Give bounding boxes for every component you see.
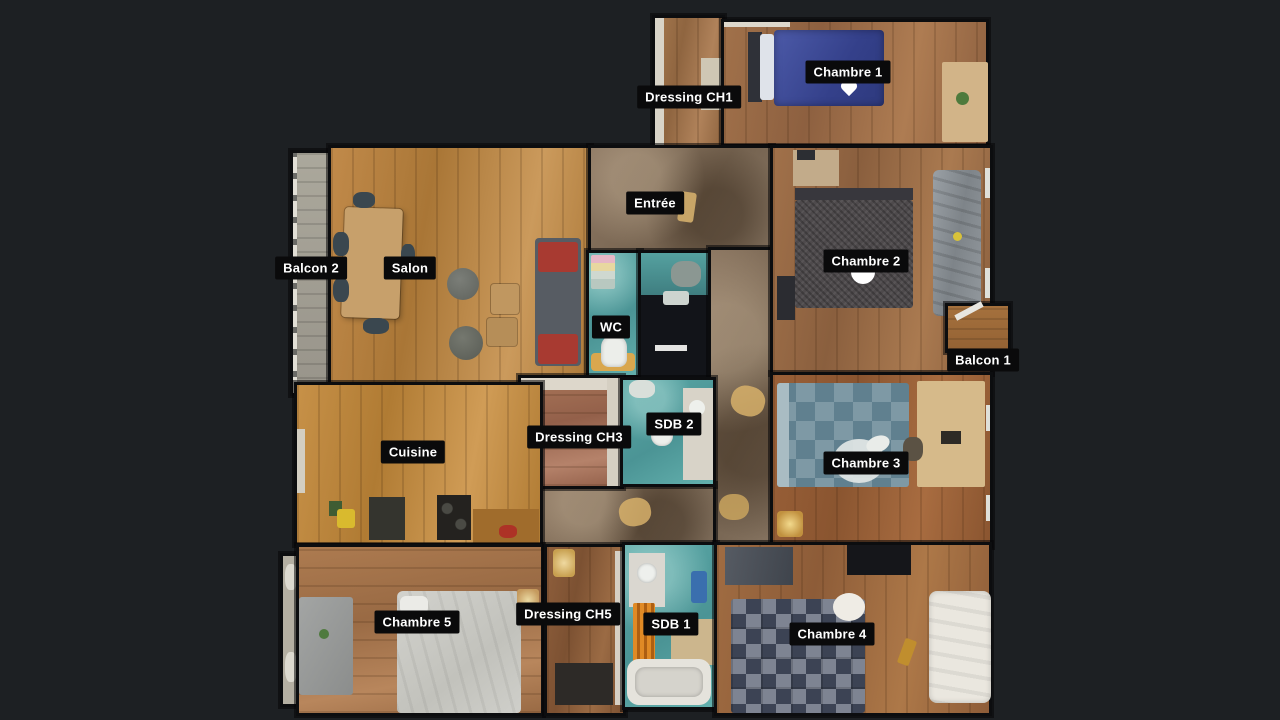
room-label-chambre-3: Chambre 3	[824, 452, 909, 475]
chambre-3-pillow-strip	[777, 383, 789, 487]
room-label-sdb-2: SDB 2	[646, 413, 701, 436]
sdb-1-towel-blue	[691, 571, 707, 603]
room-label-dressing-ch1: Dressing CH1	[637, 86, 741, 109]
salon-stool	[449, 326, 483, 360]
room-label-chambre-5: Chambre 5	[375, 611, 460, 634]
chambre-1-wall-tick	[724, 22, 790, 27]
chambre-1-pillow	[760, 34, 774, 100]
salon-stool	[447, 268, 479, 300]
chambre-3-window-tick	[986, 495, 990, 521]
room-label-salon: Salon	[384, 257, 436, 280]
room-label-chambre-2: Chambre 2	[824, 250, 909, 273]
chambre-2-dresser-item	[797, 150, 815, 160]
salon-chair	[353, 192, 375, 208]
hallway-mat	[617, 495, 653, 528]
room-balcon-1[interactable]	[948, 306, 1008, 350]
room-label-chambre-1: Chambre 1	[806, 61, 891, 84]
chambre-3-window-tick	[986, 405, 990, 431]
sdb-1-bathtub-basin	[635, 667, 703, 697]
cuisine-window	[297, 429, 305, 493]
salon-sofa-cushion-red	[538, 334, 578, 364]
room-label-wc: WC	[592, 316, 630, 339]
bathroom-gray-fixture	[671, 261, 701, 287]
room-bathroom-unscanned[interactable]	[641, 253, 713, 377]
chambre-2-yellow-item	[953, 232, 962, 241]
room-label-entree: Entrée	[626, 192, 684, 215]
salon-chair	[363, 318, 389, 334]
view-marker-heart-icon	[840, 82, 858, 98]
cuisine-red-pot	[499, 525, 517, 538]
bathroom-towel-bar	[655, 345, 687, 351]
wc-towel-shelf	[591, 255, 615, 289]
chambre-2-headboard	[795, 188, 913, 200]
hallway-vertical[interactable]	[711, 250, 773, 544]
cuisine-yellow-stool	[337, 509, 355, 528]
chambre-2-daybed	[933, 170, 981, 316]
hallway-mat	[719, 494, 749, 520]
chambre-1-plant	[956, 92, 969, 105]
curtain-white	[285, 652, 297, 682]
dressing-ch1-wall-white	[655, 18, 664, 146]
chambre-4-pouf	[833, 593, 865, 621]
dressing-ch5-cabinet	[555, 663, 613, 705]
salon-sofa-cushion-red	[538, 242, 578, 272]
chambre-4-gold-item	[897, 638, 917, 667]
chambre-4-wardrobe	[725, 547, 793, 585]
chambre-2-bench	[777, 276, 795, 320]
salon-side-table	[491, 284, 519, 314]
salon-side-table	[487, 318, 517, 346]
salon-chair	[333, 232, 349, 256]
hallway-mat	[728, 382, 769, 420]
hallway-bottom[interactable]	[541, 486, 713, 544]
room-label-dressing-ch5: Dressing CH5	[516, 603, 620, 626]
cuisine-stove	[437, 495, 471, 540]
chambre-5-desk-plant	[319, 629, 329, 639]
chambre-2-window-tick	[985, 268, 990, 298]
room-dressing-ch1[interactable]	[655, 18, 722, 146]
chambre-3-lamp	[777, 511, 803, 537]
room-dressing-ch5[interactable]	[547, 547, 623, 713]
room-wc[interactable]	[589, 253, 639, 375]
room-label-balcon-2: Balcon 2	[275, 257, 347, 280]
balcony-strip-left[interactable]	[283, 556, 300, 704]
dressing-ch5-lamp	[553, 549, 575, 577]
dressing-ch5-door	[615, 551, 623, 705]
bathroom-sink	[663, 291, 689, 305]
floorplan-stage[interactable]: Dressing CH1 Chambre 1 Entrée Balcon 2 S…	[0, 0, 1280, 720]
room-cuisine[interactable]	[297, 385, 540, 543]
room-label-balcon-1: Balcon 1	[947, 349, 1019, 372]
wc-toilet	[601, 335, 627, 367]
chambre-2-window-tick	[985, 168, 990, 198]
chambre-3-laptop	[941, 431, 961, 444]
curtain-white	[285, 564, 297, 590]
salon-chair	[333, 278, 349, 302]
cuisine-appliance	[369, 497, 405, 540]
chambre-4-scan-gap	[847, 545, 911, 575]
room-label-cuisine: Cuisine	[381, 441, 445, 464]
chambre-5-desk	[299, 597, 353, 695]
room-label-chambre-4: Chambre 4	[790, 623, 875, 646]
sdb-2-sink	[629, 380, 655, 398]
room-label-sdb-1: SDB 1	[643, 613, 698, 636]
chambre-4-futon	[929, 591, 991, 703]
room-label-dressing-ch3: Dressing CH3	[527, 426, 631, 449]
sdb-1-sink-bowl	[637, 563, 657, 583]
